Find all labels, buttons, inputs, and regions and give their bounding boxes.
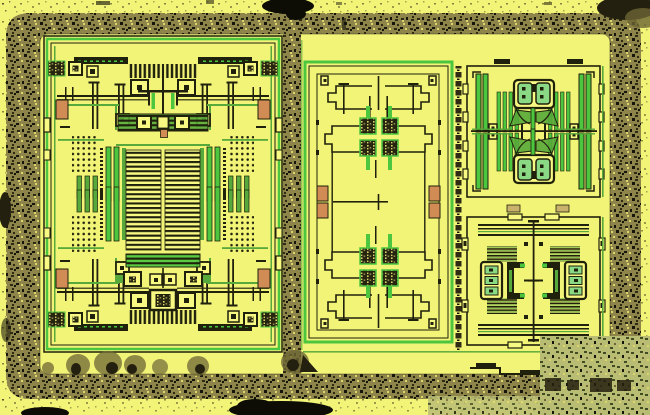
speck-top-2 bbox=[206, 0, 214, 4]
stain-bottom-center-lobe bbox=[237, 399, 273, 413]
gap-pad-right bbox=[556, 205, 569, 212]
speck-top-3 bbox=[336, 2, 342, 5]
scribe-divider bbox=[282, 26, 303, 378]
gap-pad-left bbox=[507, 205, 520, 212]
output-top-label-left bbox=[494, 59, 510, 64]
stain-left-lower bbox=[1, 318, 11, 342]
speck-top-1 bbox=[96, 1, 110, 5]
ring-mark-2 bbox=[452, 28, 462, 31]
die-photo-canvas bbox=[0, 0, 650, 415]
die-photo bbox=[0, 0, 650, 415]
stain-top-divider-core bbox=[286, 8, 306, 20]
speck-top-4 bbox=[544, 2, 552, 5]
ring-mark-1 bbox=[342, 18, 346, 30]
output-cell-top bbox=[463, 59, 604, 197]
output-top-label-right bbox=[567, 59, 583, 64]
output-top-edge-trace bbox=[602, 66, 604, 197]
micro-label-column bbox=[455, 66, 462, 350]
output-bottom-edge-trace bbox=[602, 217, 604, 345]
